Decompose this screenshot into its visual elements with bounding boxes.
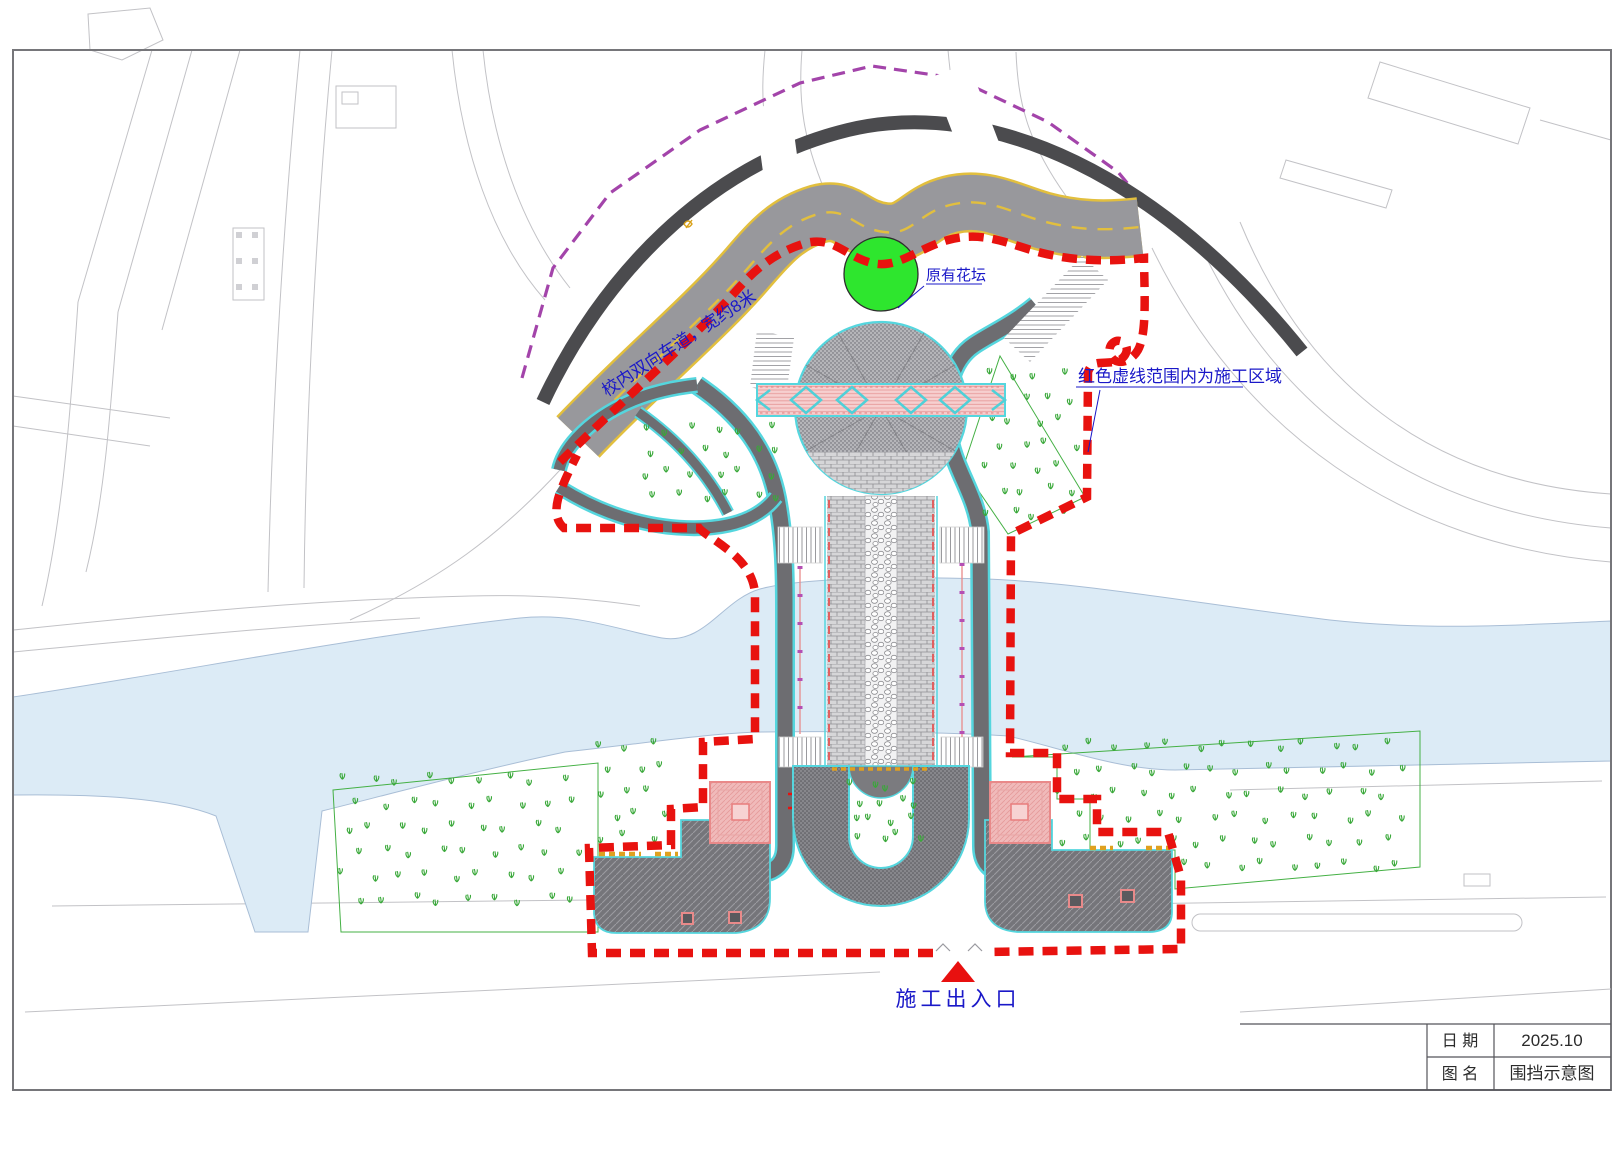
title-block-name-label: 图 名: [1442, 1065, 1478, 1083]
pavilion-right: [990, 782, 1050, 843]
south-plazas: [594, 782, 1172, 933]
site-plan-canvas: 校内双向车道，宽约8米 原有花坛 红色虚线范围内为施工区域 施工出入口 日 期 …: [0, 0, 1624, 1149]
boundary-note: 红色虚线范围内为施工区域: [1078, 367, 1282, 386]
entrance-triangle: [941, 961, 975, 982]
walkway-terminus: [793, 766, 969, 906]
title-block: 日 期 2025.10 图 名 围挡示意图: [1240, 1024, 1611, 1090]
entrance-label: 施工出入口: [896, 988, 1021, 1011]
title-block-name-value: 围挡示意图: [1510, 1064, 1595, 1083]
flowerbed-label: 原有花坛: [926, 267, 986, 284]
drawing-sheet: 校内双向车道，宽约8米 原有花坛 红色虚线范围内为施工区域 施工出入口 日 期 …: [0, 0, 1624, 1149]
pavilion-left: [710, 782, 770, 843]
title-block-date-value: 2025.10: [1521, 1031, 1582, 1050]
title-block-date-label: 日 期: [1442, 1032, 1478, 1050]
construction-entrance: [936, 944, 982, 982]
